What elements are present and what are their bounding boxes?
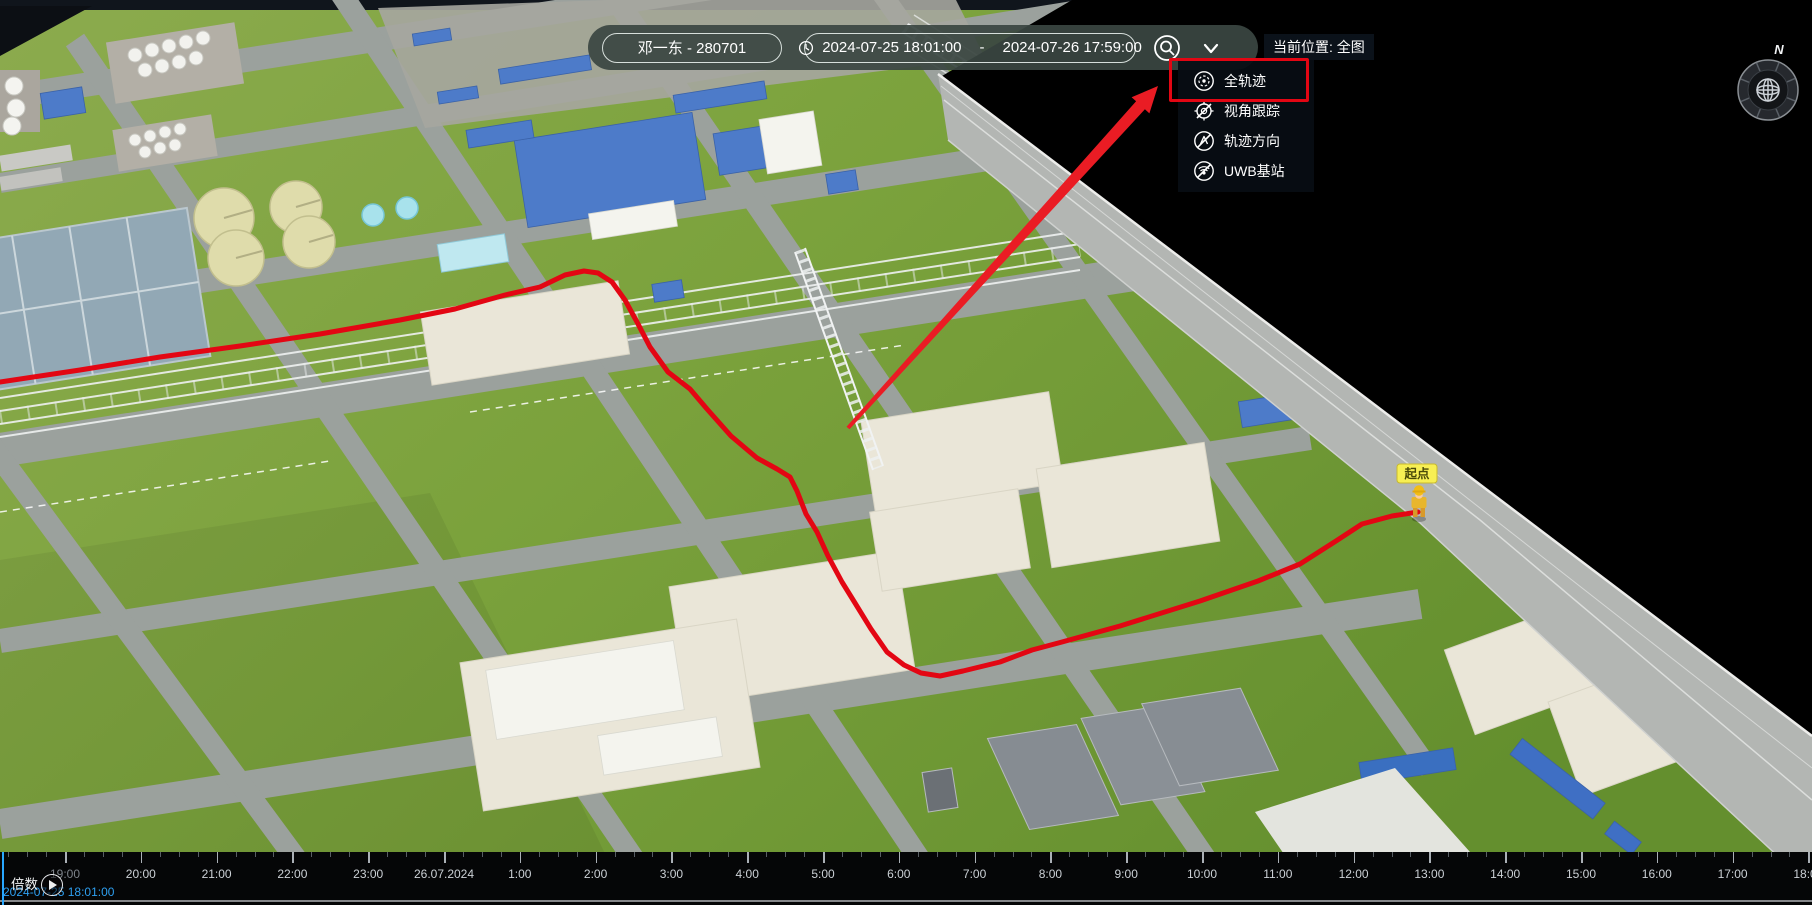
timeline-tick [1543,852,1544,857]
menu-item-view-tracking[interactable]: 视角跟踪 [1178,96,1314,126]
menu-item-trajectory-direction[interactable]: 轨迹方向 [1178,126,1314,156]
timeline-tick [1183,852,1184,857]
timeline-tick [1031,852,1032,857]
timeline-tick [994,852,995,857]
layer-dropdown-menu: 全轨迹 视角跟踪 轨迹方向 [1178,60,1314,192]
timeline-tick [766,852,767,857]
timeline-tick [1050,852,1052,863]
timeline-tick [1164,852,1165,857]
timeline-tick [463,852,464,857]
compass-north-label: N [1774,42,1784,57]
play-button[interactable] [41,874,63,896]
timeline-hour-label: 15:00 [1566,867,1596,881]
timeline-tick [1088,852,1089,857]
person-selector-value: 邓一东 - 280701 [638,37,746,58]
timeline-hour-label: 10:00 [1187,867,1217,881]
timeline-tick [160,852,161,857]
timeline-hour-label: 2:00 [584,867,607,881]
timeline-scrubber[interactable]: 19:0020:0021:0022:0023:0026.07.20241:002… [0,852,1812,905]
timeline-tick [1638,852,1639,857]
timeline-tick [198,852,199,857]
timeline-tick [46,852,47,857]
trajectory-playback-app: 起点 邓一东 - 280701 2024-07-25 18:01:00 - 20… [0,0,1812,905]
timeline-hour-label: 13:00 [1414,867,1444,881]
chevron-down-icon[interactable] [1198,35,1224,61]
timeline-hour-label: 14:00 [1490,867,1520,881]
timeline-tick [1259,852,1260,857]
timeline-tick [425,852,426,857]
timeline-tick [785,852,786,857]
timeline-hour-label: 3:00 [660,867,683,881]
start-point-label: 起点 [1403,466,1430,481]
timeline-tick [1429,852,1431,863]
menu-item-label: 全轨迹 [1224,71,1266,91]
timeline-tick [918,852,919,857]
menu-item-uwb-station[interactable]: UWB基站 [1178,156,1314,186]
menu-item-label: UWB基站 [1224,161,1285,181]
timeline-tick [1278,852,1280,863]
timeline-tick [1410,852,1411,857]
time-range-start: 2024-07-25 18:01:00 [822,39,961,56]
timeline-tick [330,852,331,857]
timeline-tick [880,852,881,857]
timeline-tick [1619,852,1620,857]
timeline-tick [842,852,843,857]
timeline-tick [1392,852,1393,857]
timeline-tick [520,852,522,863]
timeline-tick [1657,852,1659,863]
full-trajectory-icon [1193,70,1215,92]
map-canvas[interactable]: 起点 [0,0,1812,905]
timeline-tick [1505,852,1507,863]
search-icon[interactable] [1152,33,1182,63]
timeline-hour-label: 16:00 [1642,867,1672,881]
view-tracking-icon [1193,100,1215,122]
timeline-tick [501,852,502,857]
timeline-tick [1524,852,1525,857]
timeline-tick [596,852,598,863]
timeline-hour-label: 6:00 [887,867,910,881]
timeline-tick [141,852,143,863]
menu-item-full-trajectory[interactable]: 全轨迹 [1178,66,1314,96]
menu-item-label: 轨迹方向 [1224,131,1280,151]
timeline-tick [652,852,653,857]
timeline-hour-label: 11:00 [1263,867,1292,881]
timeline-tick [539,852,540,857]
timeline-tick [1771,852,1772,857]
timeline-tick [1335,852,1336,857]
timeline-hour-label: 9:00 [1115,867,1138,881]
timeline-ticks: 19:0020:0021:0022:0023:0026.07.20241:002… [0,852,1812,905]
timeline-hour-label: 18:00 [1793,867,1812,881]
timeline-tick [1808,852,1810,863]
timeline-tick [84,852,85,857]
timeline-tick [1600,852,1601,857]
timeline-hour-label: 4:00 [736,867,759,881]
timeline-hour-label: 22:00 [277,867,307,881]
time-range-end: 2024-07-26 17:59:00 [1003,39,1142,56]
timeline-tick [1733,852,1735,863]
timeline-tick [103,852,104,857]
timeline-tick [634,852,635,857]
clock-icon [798,40,814,56]
uwb-station-icon [1193,160,1215,182]
timeline-tick [1240,852,1241,857]
timeline-tick [1714,852,1715,857]
timeline-tick [1126,852,1128,863]
compass-ring [1738,60,1798,120]
timeline-hour-label: 12:00 [1339,867,1369,881]
timeline-tick [236,852,237,857]
timeline-tick [179,852,180,857]
timeline-tick [1562,852,1563,857]
person-selector[interactable]: 邓一东 - 280701 [602,33,782,63]
timeline-tick [1695,852,1696,857]
timeline-hour-label: 21:00 [202,867,232,881]
top-toolbar: 邓一东 - 280701 2024-07-25 18:01:00 - 2024-… [588,25,1258,70]
timeline-tick [1107,852,1108,857]
timeline-tick [1316,852,1317,857]
timeline-tick [255,852,256,857]
timeline-tick [823,852,825,863]
timeline-tick [1581,852,1583,863]
timeline-hour-label: 5:00 [811,867,834,881]
timeline-tick [956,852,957,857]
time-range-separator: - [980,39,985,56]
timeline-tick [406,852,407,857]
timeline-tick [937,852,938,857]
timeline-tick [615,852,616,857]
menu-item-label: 视角跟踪 [1224,101,1280,121]
timeline-tick [217,852,219,863]
timeline-tick [1069,852,1070,857]
timeline-tick [311,852,312,857]
timeline-tick [577,852,578,857]
timeline-tick [1221,852,1222,857]
timeline-tick [273,852,274,857]
timeline-tick [558,852,559,857]
timeline-tick [709,852,710,857]
timeline-tick [368,852,370,863]
timeline-tick [747,852,749,863]
timeline-hour-label: 20:00 [126,867,156,881]
timeline-tick [1676,852,1677,857]
timeline-tick [1013,852,1014,857]
timeline-tick [728,852,729,857]
timeline-tick [1752,852,1753,857]
timeline-hour-label: 1:00 [508,867,531,881]
timeline-tick [387,852,388,857]
timeline-tick [671,852,673,863]
timeline-tick [1486,852,1487,857]
timeline-tick [690,852,691,857]
timeline-tick [122,852,123,857]
current-location-label: 当前位置: 全图 [1264,34,1374,60]
timeline-tick [8,852,9,857]
timeline-hour-label: 7:00 [963,867,986,881]
speed-multiplier-label: 倍数 [11,873,38,893]
timeline-tick [804,852,805,857]
timeline-tick [444,852,446,863]
time-range-picker[interactable]: 2024-07-25 18:01:00 - 2024-07-26 17:59:0… [804,33,1136,63]
compass-control[interactable]: N [1730,38,1810,134]
timeline-separator [0,900,1812,902]
timeline-tick [1202,852,1204,863]
timeline-tick [1448,852,1449,857]
timeline-tick [27,852,28,857]
timeline-tick [861,852,862,857]
timeline-tick [482,852,483,857]
trajectory-direction-icon [1193,130,1215,152]
timeline-tick [1297,852,1298,857]
play-icon [49,880,57,890]
timeline-tick [292,852,294,863]
timeline-hour-label: 23:00 [353,867,383,881]
timeline-tick [1789,852,1790,857]
timeline-tick [1354,852,1356,863]
timeline-hour-label: 26.07.2024 [414,867,474,881]
timeline-tick [1145,852,1146,857]
timeline-hour-label: 17:00 [1718,867,1748,881]
map-3d-scene: 起点 [0,0,1812,905]
timeline-tick [899,852,901,863]
timeline-hour-label: 8:00 [1039,867,1062,881]
timeline-tick [349,852,350,857]
timeline-tick [975,852,977,863]
timeline-tick [65,852,67,863]
timeline-tick [1373,852,1374,857]
timeline-tick [1467,852,1468,857]
globe-icon [1757,79,1779,101]
